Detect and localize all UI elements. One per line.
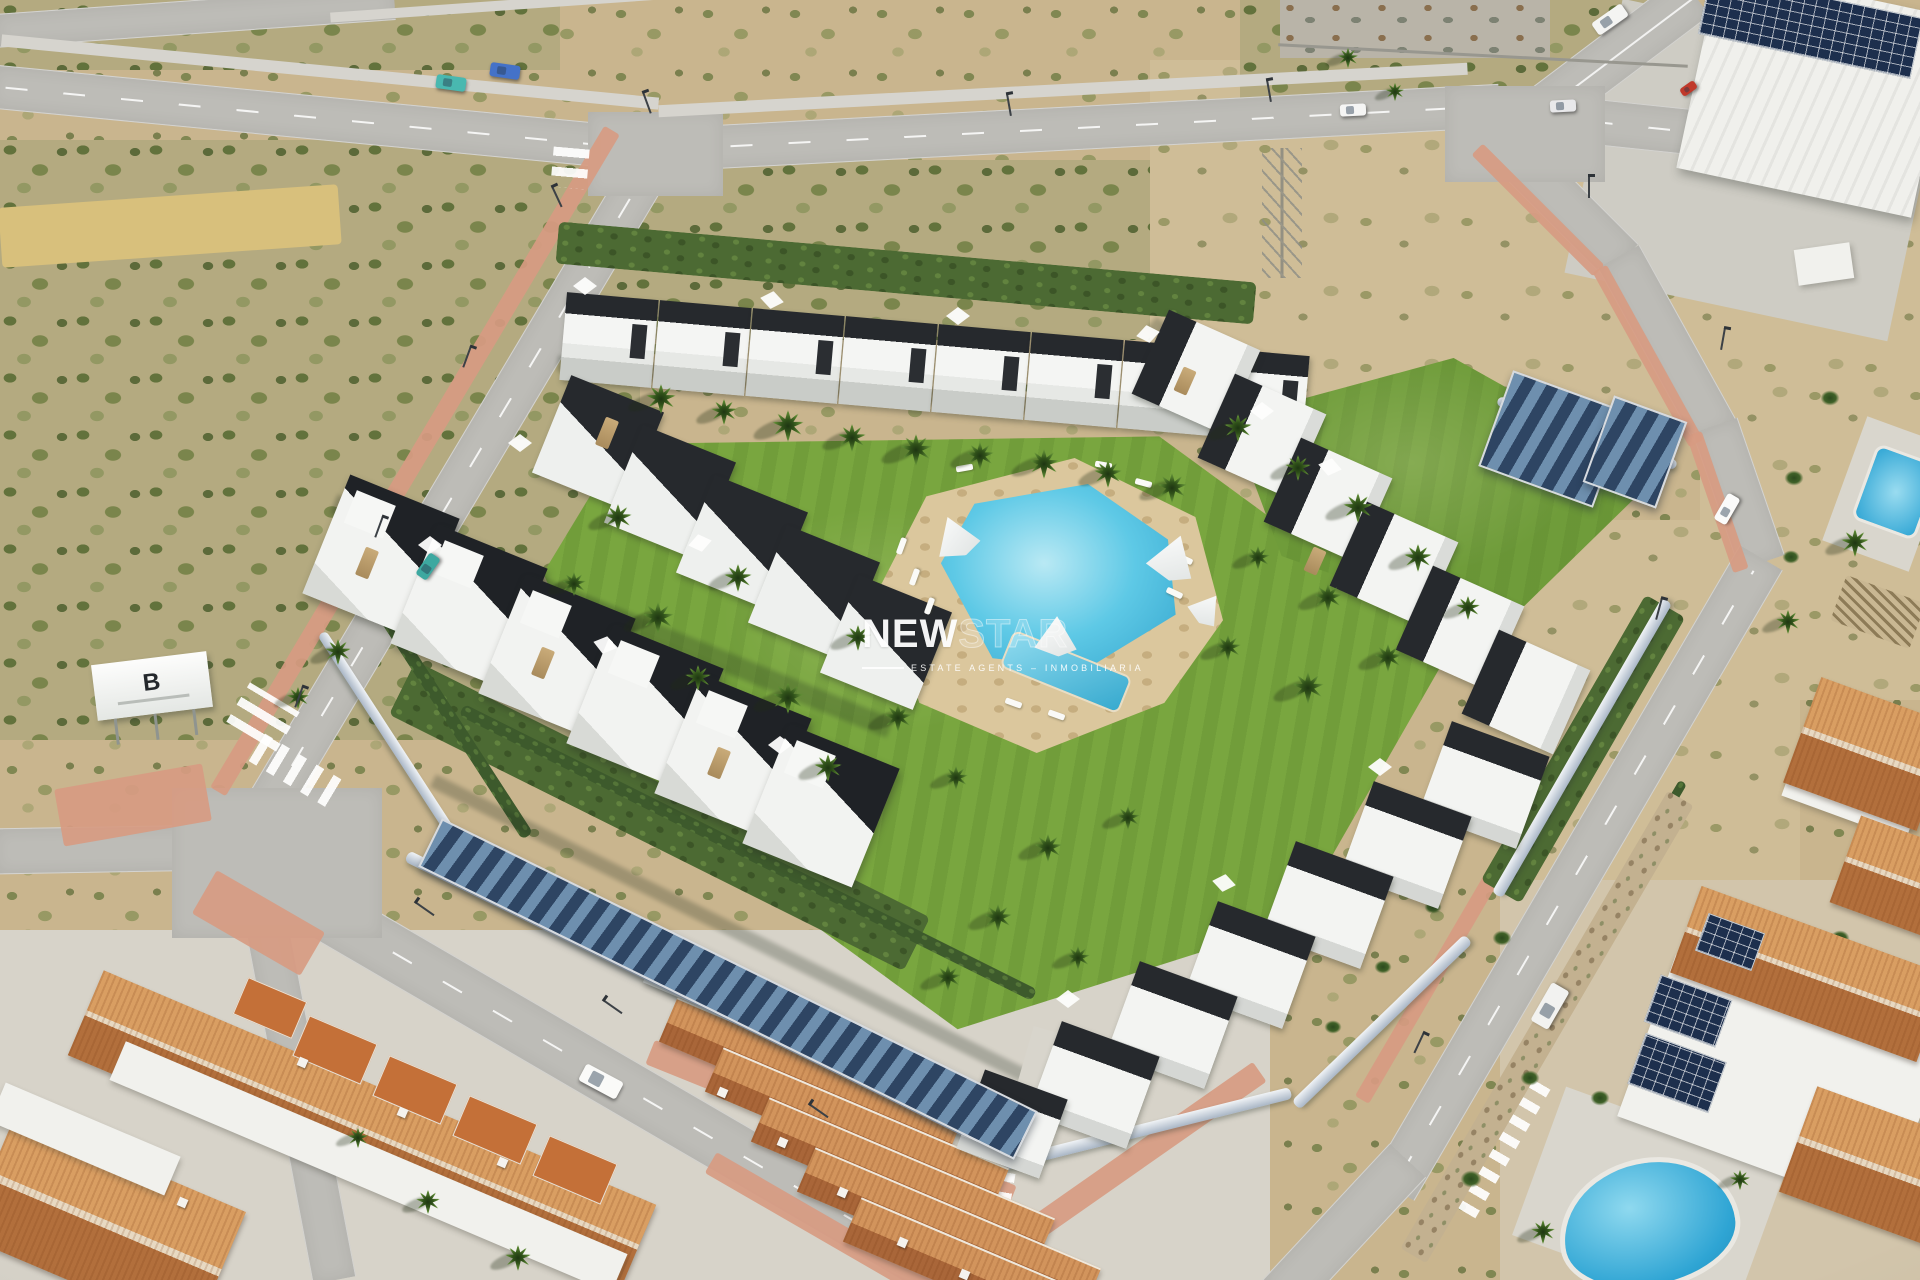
palm-tree [1065, 945, 1091, 971]
palm-tree [771, 409, 805, 443]
palm-tree [1156, 472, 1188, 504]
shrub [1460, 1170, 1482, 1188]
palm-tree [1115, 805, 1141, 831]
palm-tree [965, 441, 995, 471]
palm-tree [883, 703, 913, 733]
shrub [1324, 1020, 1342, 1034]
aerial-photo-canvas: B NEW STAR ESTATE AGENTS – INMOBILIARIA [0, 0, 1920, 1280]
palm-tree [1840, 528, 1870, 558]
palm-tree [837, 423, 867, 453]
power-pylon [1262, 148, 1302, 278]
palm-tree [1729, 1169, 1751, 1191]
townhouse-north-row [559, 292, 658, 388]
palm-tree [324, 638, 352, 666]
palm-tree [943, 765, 969, 791]
townhouse-north-row [652, 300, 751, 396]
townhouse-north-row [931, 324, 1030, 420]
shrub [1590, 1090, 1610, 1106]
palm-tree [1313, 583, 1343, 613]
palm-tree [415, 1189, 441, 1215]
shrub [1492, 930, 1512, 946]
palm-tree [723, 563, 753, 593]
palm-tree [1284, 454, 1312, 482]
shrub [1820, 390, 1840, 406]
billboard-logo: B [142, 670, 162, 696]
palm-tree [1385, 82, 1405, 102]
palm-tree [1455, 595, 1481, 621]
shrub [1374, 960, 1392, 974]
palm-tree [1291, 671, 1325, 705]
car [1550, 99, 1577, 112]
palm-tree [347, 1127, 369, 1149]
palm-tree [1033, 833, 1063, 863]
palm-tree [504, 1244, 532, 1272]
street-light [1588, 176, 1590, 198]
palm-tree [771, 681, 805, 715]
palm-tree [1403, 543, 1433, 573]
palm-tree [710, 398, 738, 426]
palm-tree [899, 433, 933, 467]
palm-tree [1214, 634, 1242, 662]
palm-tree [1342, 492, 1374, 524]
palm-tree [1775, 609, 1801, 635]
shrub [1520, 1070, 1540, 1086]
townhouse-north-row [1024, 332, 1123, 428]
palm-tree [645, 383, 677, 415]
palm-tree [684, 664, 712, 692]
palm-tree [641, 601, 675, 635]
palm-tree [1373, 643, 1403, 673]
palm-tree [1245, 545, 1271, 571]
palm-tree [603, 503, 633, 533]
storage-yard [1280, 0, 1550, 58]
palm-tree [934, 964, 962, 992]
palm-tree [1530, 1219, 1556, 1245]
palm-tree [1223, 413, 1253, 443]
palm-tree [983, 903, 1013, 933]
shrub [1782, 550, 1800, 564]
car [1340, 103, 1367, 116]
townhouse-north-row [838, 316, 937, 412]
palm-tree [813, 753, 843, 783]
shrub [1784, 470, 1804, 486]
townhouse-north-row [745, 308, 844, 404]
palm-tree [844, 624, 872, 652]
palm-tree [1093, 459, 1123, 489]
white-building [1794, 242, 1854, 285]
palm-tree [1337, 47, 1359, 69]
palm-tree [1028, 448, 1060, 480]
palm-tree [561, 571, 587, 597]
road-intersection [1445, 86, 1605, 182]
